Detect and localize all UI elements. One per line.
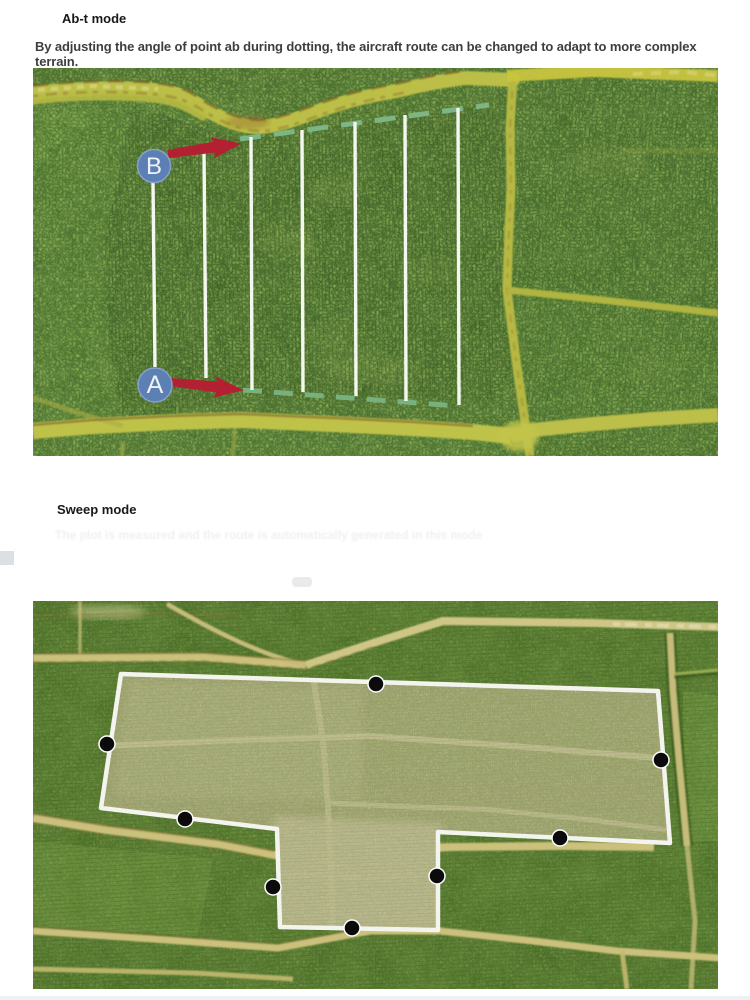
svg-text:A: A	[147, 371, 164, 399]
svg-text:B: B	[146, 153, 162, 180]
